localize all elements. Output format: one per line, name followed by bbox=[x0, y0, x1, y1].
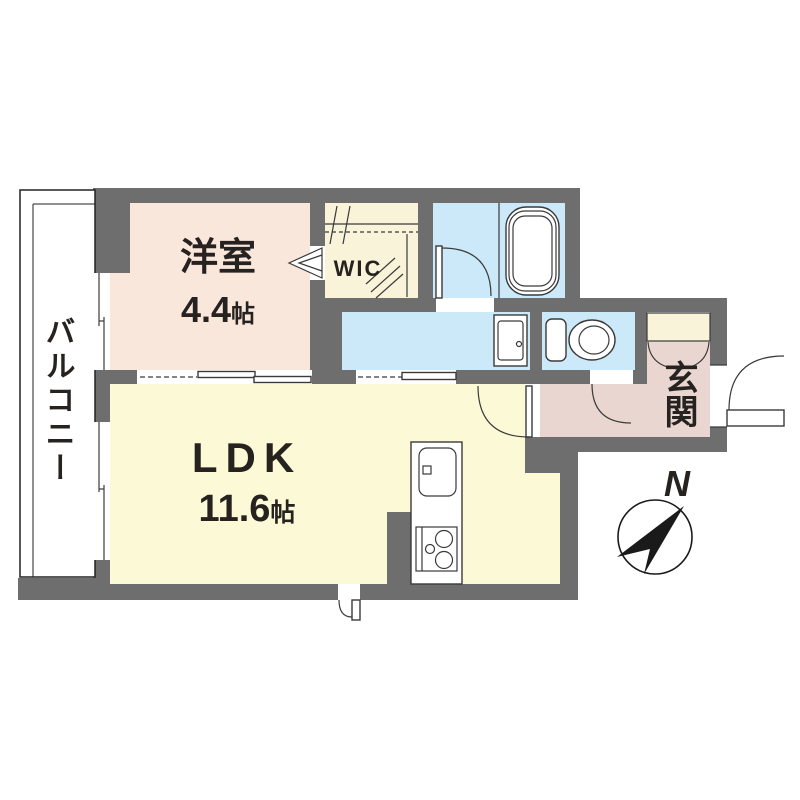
wall-column-western-room bbox=[110, 203, 130, 273]
wall-toilet-genkan bbox=[635, 312, 647, 370]
wall-mid-band bbox=[310, 298, 727, 312]
wall-step-chunk bbox=[525, 452, 578, 473]
floorplan-page: N バルコニー 洋室 4.4帖 WIC LDK 11.6帖 玄関 bbox=[0, 0, 800, 800]
wall-hall-bottom bbox=[525, 437, 727, 452]
wall-kitchen-column bbox=[387, 512, 412, 584]
compass: N bbox=[617, 463, 692, 574]
wall-washroom-toilet bbox=[530, 312, 542, 370]
washbasin bbox=[494, 315, 527, 366]
ldk-bottom-door bbox=[338, 584, 360, 620]
western-room-label: 洋室 bbox=[180, 236, 256, 279]
front-door bbox=[710, 356, 784, 427]
kitchen-counter bbox=[411, 442, 462, 584]
ldk-room-kitchen-nook bbox=[525, 473, 560, 584]
wall-top bbox=[93, 188, 580, 203]
western-room bbox=[110, 203, 310, 370]
window-western-room bbox=[93, 273, 110, 370]
wic-room bbox=[325, 203, 418, 298]
wall-washroom-left bbox=[310, 312, 342, 370]
window-ldk bbox=[93, 422, 110, 560]
wall-bottom-left bbox=[18, 578, 110, 600]
sliding-door-western-ldk bbox=[137, 370, 312, 384]
ldk-label: LDK bbox=[192, 434, 302, 481]
wall-kitchen-right bbox=[560, 473, 578, 584]
balcony-label: バルコニー bbox=[41, 316, 75, 486]
genkan-label: 玄関 bbox=[659, 360, 697, 428]
floorplan-canvas: N バルコニー 洋室 4.4帖 WIC LDK 11.6帖 玄関 bbox=[0, 0, 800, 800]
genkan-shoe-cabinet bbox=[647, 313, 710, 341]
ldk-room bbox=[110, 384, 525, 584]
wic-label: WIC bbox=[334, 256, 383, 281]
toilet bbox=[546, 319, 615, 361]
sliding-door-washroom bbox=[356, 370, 456, 384]
wall-bath-right bbox=[565, 203, 580, 298]
bathtub bbox=[499, 203, 559, 298]
hallway bbox=[540, 384, 647, 437]
wall-wic-bath bbox=[418, 203, 433, 298]
north-label: N bbox=[664, 463, 691, 504]
